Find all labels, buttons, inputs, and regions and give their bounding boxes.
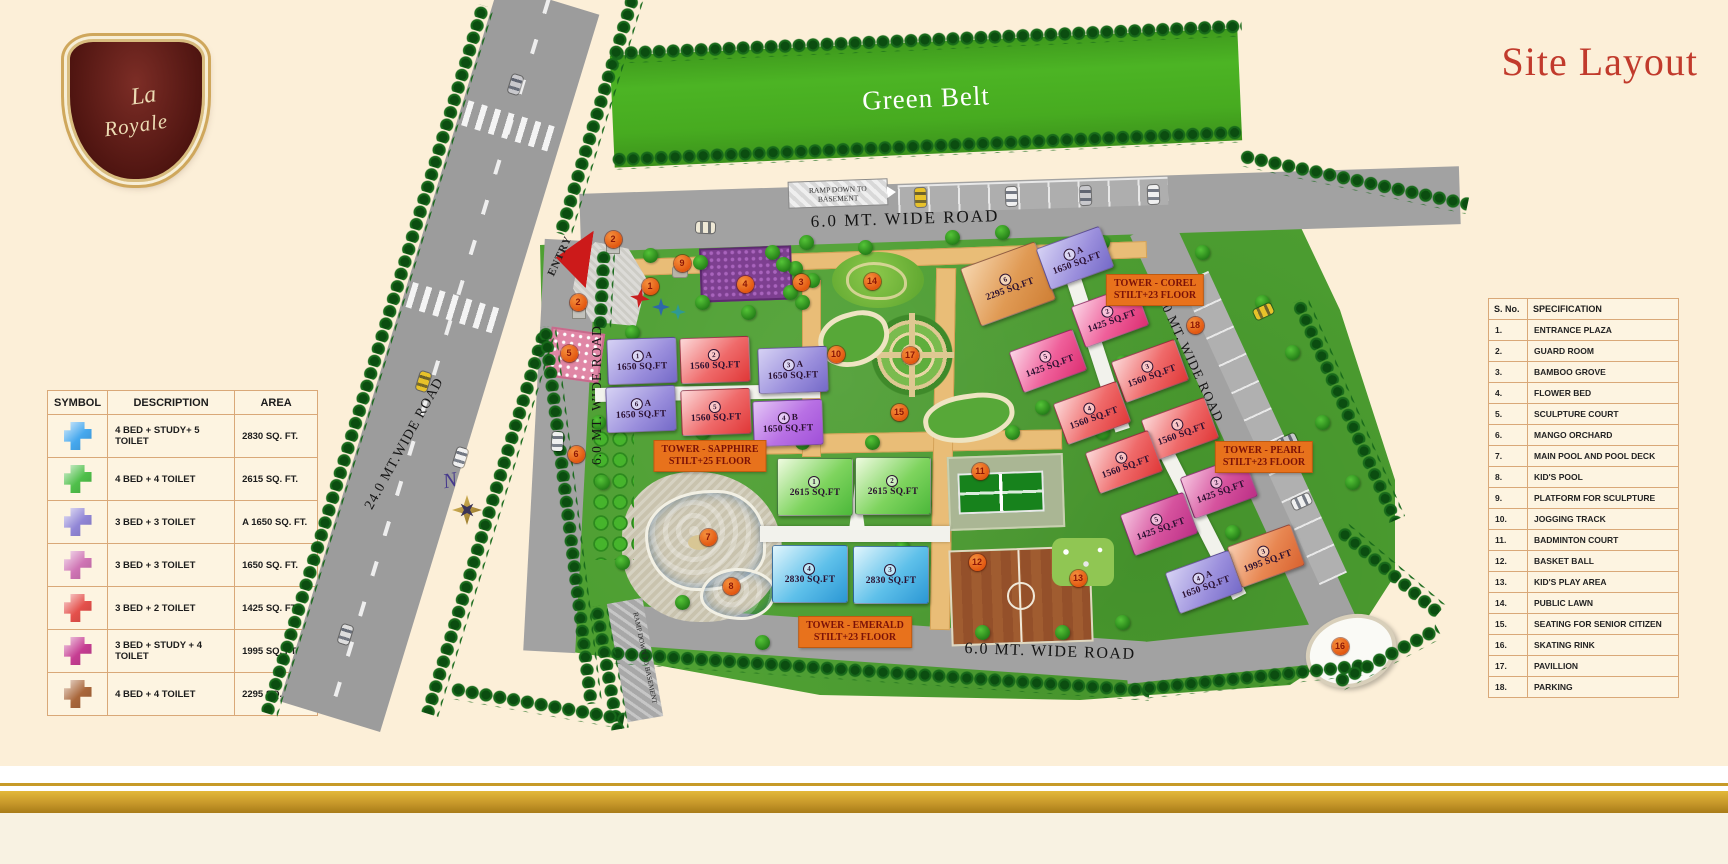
- unit-number: 3: [782, 358, 794, 370]
- tree-icon: [995, 225, 1010, 240]
- spec-text: ENTRANCE PLAZA: [1528, 320, 1679, 341]
- spec-number: 5.: [1489, 404, 1528, 425]
- tree-icon: [1055, 625, 1070, 640]
- tree-icon: [595, 475, 610, 490]
- spec-row: 5.SCULPTURE COURT: [1489, 404, 1679, 425]
- legend-row: 3 BED + 3 TOILET1650 SQ. FT.: [48, 544, 318, 587]
- unit-suffix: A: [645, 350, 652, 361]
- tree-icon: [1225, 525, 1240, 540]
- unit-suffix: A: [644, 398, 651, 409]
- tree-icon: [675, 595, 690, 610]
- legend-description: 4 BED + 4 TOILET: [108, 673, 235, 716]
- legend-description: 3 BED + 3 TOILET: [108, 501, 235, 544]
- spec-row: 1.ENTRANCE PLAZA: [1489, 320, 1679, 341]
- legend-row: 3 BED + 2 TOILET1425 SQ. FT.: [48, 587, 318, 630]
- amenity-marker: 13: [1070, 570, 1087, 587]
- tree-icon: [1115, 615, 1130, 630]
- tower-label: TOWER - SAPPHIRESTILT+25 FLOOR: [654, 441, 765, 471]
- spec-table: S. No.SPECIFICATION1.ENTRANCE PLAZA2.GUA…: [1488, 298, 1679, 698]
- legend-area: A 1650 SQ. FT.: [235, 501, 318, 544]
- tree-icon: [865, 435, 880, 450]
- amenity-marker: 14: [864, 273, 881, 290]
- spec-header-cell: S. No.: [1489, 299, 1528, 320]
- tree-icon: [795, 295, 810, 310]
- unit-area: 1650 SQ.FT: [616, 409, 667, 422]
- tower-unit: 42830 SQ.FT: [772, 545, 848, 603]
- tower-name: TOWER - COREL: [1114, 278, 1196, 290]
- amenity-marker: 2: [570, 294, 587, 311]
- bottom-band-gold-thin: [0, 783, 1728, 786]
- unit-area: 2830 SQ.FT: [866, 576, 917, 587]
- spec-number: 10.: [1489, 509, 1528, 530]
- brand-logo: La Royale: [61, 33, 211, 188]
- bottom-band-gold: [0, 791, 1728, 813]
- tower-unit: 32830 SQ.FT: [853, 546, 929, 604]
- unit-area: 1560 SQ.FT: [691, 412, 742, 425]
- spec-number: 13.: [1489, 572, 1528, 593]
- tower-name: TOWER - SAPPHIRE: [661, 444, 758, 456]
- legend-header-cell: DESCRIPTION: [108, 391, 235, 415]
- unit-symbol-icon: [64, 551, 92, 579]
- tower-label: TOWER - CORELSTILT+23 FLOOR: [1107, 275, 1203, 305]
- tree-icon: [643, 248, 658, 263]
- spec-row: 6.MANGO ORCHARD: [1489, 425, 1679, 446]
- spec-text: PUBLIC LAWN: [1528, 593, 1679, 614]
- tree-icon: [1035, 400, 1050, 415]
- tower-name: TOWER - EMERALD: [806, 620, 904, 632]
- amenity-marker: 1: [642, 278, 659, 295]
- legend-header-cell: SYMBOL: [48, 391, 108, 415]
- road-dashes: [327, 0, 550, 717]
- spec-number: 11.: [1489, 530, 1528, 551]
- unit-suffix: B: [792, 412, 798, 423]
- tree-icon: [1195, 245, 1210, 260]
- spec-number: 4.: [1489, 383, 1528, 404]
- tower-name: TOWER - PEARL: [1223, 445, 1305, 457]
- tower-unit: 3A1650 SQ.FT: [757, 346, 829, 394]
- amenity-marker: 4: [737, 276, 754, 293]
- legend-area: 2830 SQ. FT.: [235, 415, 318, 458]
- tree-icon: [755, 635, 770, 650]
- spec-text: KID'S PLAY AREA: [1528, 572, 1679, 593]
- spec-row: 18.PARKING: [1489, 677, 1679, 698]
- spec-number: 17.: [1489, 656, 1528, 677]
- amenity-marker: 18: [1187, 317, 1204, 334]
- spec-number: 7.: [1489, 446, 1528, 467]
- unit-area: 1650 SQ.FT: [763, 423, 814, 436]
- unit-number: 6: [630, 397, 642, 409]
- tree-icon: [1315, 415, 1330, 430]
- legend-header-cell: AREA: [235, 391, 318, 415]
- spec-text: BAMBOO GROVE: [1528, 362, 1679, 383]
- amenity-marker: 10: [828, 346, 845, 363]
- spec-number: 18.: [1489, 677, 1528, 698]
- unit-number: 4: [778, 411, 790, 423]
- tree-icon: [799, 235, 814, 250]
- zebra-crossing: [405, 282, 503, 335]
- spec-number: 6.: [1489, 425, 1528, 446]
- spec-number: 15.: [1489, 614, 1528, 635]
- amenity-marker: 7: [700, 529, 717, 546]
- logo-text-royale: Royale: [102, 108, 169, 142]
- spec-row: 17.PAVILLION: [1489, 656, 1679, 677]
- spec-text: KID'S POOL: [1528, 467, 1679, 488]
- tower-floors: STILT+23 FLOOR: [1223, 457, 1305, 469]
- unit-number: 1: [631, 349, 643, 361]
- amenity-marker: 3: [793, 274, 810, 291]
- unit-symbol-icon: [64, 508, 92, 536]
- site-layout-page: La Royale Site Layout SYMBOLDESCRIPTIONA…: [0, 0, 1728, 864]
- unit-symbol-icon: [64, 422, 92, 450]
- car-icon: [1006, 187, 1018, 206]
- unit-symbol-icon: [64, 594, 92, 622]
- spec-number: 12.: [1489, 551, 1528, 572]
- spec-row: 15.SEATING FOR SENIOR CITIZEN: [1489, 614, 1679, 635]
- spec-row: 7.MAIN POOL AND POOL DECK: [1489, 446, 1679, 467]
- spec-number: 1.: [1489, 320, 1528, 341]
- unit-number: 2: [708, 348, 720, 360]
- tower-unit: 6A1650 SQ.FT: [605, 385, 677, 433]
- spec-row: 12.BASKET BALL: [1489, 551, 1679, 572]
- tree-icon: [1345, 475, 1360, 490]
- spec-row: 11.BADMINTON COURT: [1489, 530, 1679, 551]
- ramp-basement-box: RAMP DOWN TO BASEMENT: [788, 178, 889, 208]
- legend-area: 2615 SQ. FT.: [235, 458, 318, 501]
- unit-number: 4: [803, 563, 815, 575]
- legend-row: 4 BED + 4 TOILET2615 SQ. FT.: [48, 458, 318, 501]
- spec-text: BASKET BALL: [1528, 551, 1679, 572]
- car-icon: [552, 432, 564, 452]
- legend-description: 3 BED + 2 TOILET: [108, 587, 235, 630]
- amenity-marker: 9: [674, 255, 691, 272]
- tree-icon: [741, 305, 756, 320]
- amenity-marker: 11: [972, 463, 989, 480]
- tower-unit: 4B1650 SQ.FT: [752, 399, 824, 447]
- car-icon: [1148, 185, 1160, 204]
- unit-symbol-icon: [64, 680, 92, 708]
- spec-table-grid: S. No.SPECIFICATION1.ENTRANCE PLAZA2.GUA…: [1488, 298, 1679, 698]
- spec-text: GUARD ROOM: [1528, 341, 1679, 362]
- spec-text: PAVILLION: [1528, 656, 1679, 677]
- spec-number: 8.: [1489, 467, 1528, 488]
- amenity-marker: 15: [891, 404, 908, 421]
- spec-text: SEATING FOR SENIOR CITIZEN: [1528, 614, 1679, 635]
- spec-number: 9.: [1489, 488, 1528, 509]
- tree-icon: [776, 257, 791, 272]
- spec-row: 13.KID'S PLAY AREA: [1489, 572, 1679, 593]
- legend-description: 4 BED + 4 TOILET: [108, 458, 235, 501]
- legend-row: 4 BED + STUDY+ 5 TOILET2830 SQ. FT.: [48, 415, 318, 458]
- unit-number: 2: [886, 475, 898, 487]
- tower-label: TOWER - PEARLSTILT+23 FLOOR: [1216, 442, 1312, 472]
- spec-text: PARKING: [1528, 677, 1679, 698]
- tree-icon: [858, 240, 873, 255]
- tree-icon: [615, 555, 630, 570]
- unit-area: 2615 SQ.FT: [790, 488, 841, 499]
- amenity-marker: 8: [723, 578, 740, 595]
- legend-description: 4 BED + STUDY+ 5 TOILET: [108, 415, 235, 458]
- spec-text: FLOWER BED: [1528, 383, 1679, 404]
- spec-text: MAIN POOL AND POOL DECK: [1528, 446, 1679, 467]
- tower-floors: STILT+23 FLOOR: [1114, 290, 1196, 302]
- tower-unit: 1A1650 SQ.FT: [606, 337, 678, 385]
- spec-row: 2.GUARD ROOM: [1489, 341, 1679, 362]
- tree-icon: [695, 295, 710, 310]
- tree-icon: [975, 625, 990, 640]
- tree-icon: [945, 230, 960, 245]
- spec-number: 14.: [1489, 593, 1528, 614]
- spec-row: 16.SKATING RINK: [1489, 635, 1679, 656]
- spec-row: 3.BAMBOO GROVE: [1489, 362, 1679, 383]
- legend-description: 3 BED + 3 TOILET: [108, 544, 235, 587]
- spec-row: 8.KID'S POOL: [1489, 467, 1679, 488]
- car-icon: [1080, 186, 1092, 205]
- amenity-marker: 2: [605, 231, 622, 248]
- legend-row: 3 BED + 3 TOILETA 1650 SQ. FT.: [48, 501, 318, 544]
- green-belt-label: Green Belt: [862, 80, 991, 117]
- tower-label: TOWER - EMERALDSTILT+23 FLOOR: [799, 617, 911, 647]
- spec-text: JOGGING TRACK: [1528, 509, 1679, 530]
- amenity-marker: 12: [969, 554, 986, 571]
- spec-row: 10.JOGGING TRACK: [1489, 509, 1679, 530]
- unit-suffix: A: [796, 359, 803, 370]
- tower-unit: 22615 SQ.FT: [855, 457, 931, 515]
- unit-symbol-icon: [64, 465, 92, 493]
- unit-number: 1: [808, 476, 820, 488]
- car-icon: [915, 188, 927, 207]
- badminton-court: [957, 471, 1044, 515]
- amenity-marker: 16: [1332, 638, 1349, 655]
- tower-floors: STILT+23 FLOOR: [806, 632, 904, 644]
- spec-row: 9.PLATFORM FOR SCULPTURE: [1489, 488, 1679, 509]
- unit-area: 1650 SQ.FT: [617, 361, 668, 374]
- amenity-marker: 6: [568, 446, 585, 463]
- amenity-marker: 17: [902, 347, 919, 364]
- car-icon: [696, 222, 715, 234]
- kids-pool: [700, 568, 776, 620]
- spec-number: 16.: [1489, 635, 1528, 656]
- spec-number: 2.: [1489, 341, 1528, 362]
- spec-number: 3.: [1489, 362, 1528, 383]
- unit-symbol-icon: [64, 637, 92, 665]
- spec-row: 4.FLOWER BED: [1489, 383, 1679, 404]
- unit-area: 1560 SQ.FT: [690, 360, 741, 373]
- amenity-marker: 5: [561, 345, 578, 362]
- tower-unit: 12615 SQ.FT: [777, 458, 853, 516]
- unit-area: 2615 SQ.FT: [868, 487, 919, 498]
- tower-unit: 51560 SQ.FT: [680, 388, 752, 436]
- tree-icon: [693, 255, 708, 270]
- page-title: Site Layout: [1501, 38, 1698, 85]
- unit-number: 5: [709, 400, 721, 412]
- logo-text-la: La: [129, 81, 158, 111]
- unit-area: 1650 SQ.FT: [768, 370, 819, 383]
- bottom-band-pale: [0, 813, 1728, 864]
- tower-unit: 21560 SQ.FT: [679, 336, 751, 384]
- ramp-basement-label: RAMP DOWN TO BASEMENT: [809, 184, 867, 204]
- spec-row: 14.PUBLIC LAWN: [1489, 593, 1679, 614]
- unit-number: 3: [884, 564, 896, 576]
- spec-text: SKATING RINK: [1528, 635, 1679, 656]
- tree-icon: [1005, 425, 1020, 440]
- logo-shield-icon: La Royale: [67, 39, 205, 182]
- tower-floors: STILT+25 FLOOR: [661, 456, 758, 468]
- spec-text: SCULPTURE COURT: [1528, 404, 1679, 425]
- unit-area: 2830 SQ.FT: [785, 575, 836, 586]
- zebra-crossing: [461, 100, 559, 153]
- spec-text: MANGO ORCHARD: [1528, 425, 1679, 446]
- spec-text: PLATFORM FOR SCULPTURE: [1528, 488, 1679, 509]
- legend-description: 3 BED + STUDY + 4 TOILET: [108, 630, 235, 673]
- tree-icon: [1285, 345, 1300, 360]
- spec-header-cell: SPECIFICATION: [1528, 299, 1679, 320]
- spec-text: BADMINTON COURT: [1528, 530, 1679, 551]
